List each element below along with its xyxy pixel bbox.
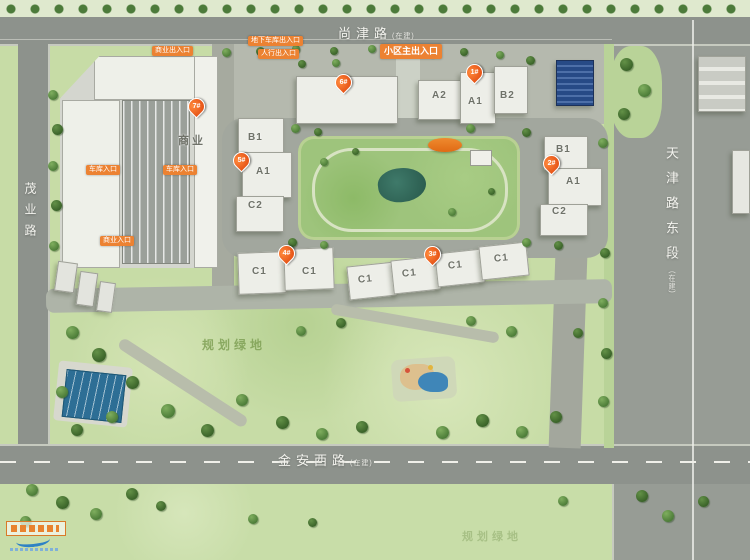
tree xyxy=(298,60,306,68)
offsite-building-e xyxy=(732,150,750,214)
entrance-tag-west-2: 车库入口 xyxy=(163,165,197,175)
road-label-top: 尚津路(在建) xyxy=(338,23,415,42)
tree xyxy=(296,326,306,336)
tree xyxy=(236,394,248,406)
tree xyxy=(330,47,338,55)
tree xyxy=(276,416,289,429)
tree xyxy=(573,328,583,338)
tree xyxy=(66,326,79,339)
south-green-strip xyxy=(0,482,614,560)
tree xyxy=(314,128,322,136)
tree xyxy=(436,426,449,439)
commercial-complex xyxy=(60,56,218,268)
tree xyxy=(522,238,531,247)
tree xyxy=(598,396,609,407)
road-label-left: 茂业路 xyxy=(22,182,39,245)
road-name-right: 天津路东段 xyxy=(664,146,679,271)
site-plan-map: 尚津路(在建) 茂业路 天津路东段(在建) 金安西路(在建) xyxy=(0,0,750,560)
existing-building-1 xyxy=(54,261,78,293)
tree xyxy=(601,348,612,359)
offsite-building-ne xyxy=(698,56,746,112)
commercial-east-wing xyxy=(194,56,218,268)
road-label-right: 天津路东段(在建) xyxy=(662,146,681,294)
lane-marking-top xyxy=(0,39,612,40)
road-name-left: 茂业路 xyxy=(23,182,37,245)
tree xyxy=(291,124,300,133)
tree xyxy=(332,59,340,67)
tree xyxy=(618,108,630,120)
tree xyxy=(598,138,608,148)
tree xyxy=(368,45,376,53)
tree xyxy=(56,496,69,509)
tree xyxy=(71,424,83,436)
entrance-tag-west-1: 车库入口 xyxy=(86,165,120,175)
tree xyxy=(554,241,563,250)
tree xyxy=(476,414,489,427)
tree xyxy=(51,200,62,211)
unit-label: C1 xyxy=(447,259,463,271)
tree xyxy=(522,128,531,137)
unit-label: B2 xyxy=(500,90,515,101)
commercial-label: 商业 xyxy=(178,132,206,148)
tree xyxy=(662,510,674,522)
tree xyxy=(49,241,59,251)
tree xyxy=(161,404,175,418)
tree xyxy=(598,298,608,308)
unit-label: C1 xyxy=(493,252,509,264)
tree xyxy=(558,496,568,506)
entrance-tag-garage: 地下车库出入口 xyxy=(248,36,303,46)
entrance-tag-pedestrian: 人行出入口 xyxy=(258,49,299,59)
corner-green xyxy=(610,46,662,138)
road-status-right: (在建) xyxy=(668,271,675,294)
tree xyxy=(52,124,63,135)
unit-label: A1 xyxy=(566,176,581,187)
tree xyxy=(620,58,633,71)
unit-label: C1 xyxy=(302,266,317,277)
road-status-top: (在建) xyxy=(392,33,415,40)
tree xyxy=(248,514,258,524)
tree xyxy=(506,326,517,337)
facility-building-blue xyxy=(556,60,594,106)
road-left xyxy=(18,44,50,482)
tree xyxy=(308,518,317,527)
unit-label: A2 xyxy=(432,90,447,101)
unit-label: C2 xyxy=(248,200,263,211)
lane-marking-right xyxy=(692,20,694,560)
green-space-label-south: 规划绿地 xyxy=(462,528,522,544)
tree xyxy=(320,158,328,166)
tree xyxy=(92,348,106,362)
tree xyxy=(516,426,528,438)
tree xyxy=(156,501,166,511)
tree xyxy=(466,124,475,133)
unit-label: C1 xyxy=(357,273,373,285)
tree xyxy=(48,90,58,100)
tree xyxy=(26,484,38,496)
tree xyxy=(488,188,495,195)
tree xyxy=(320,241,328,249)
tree xyxy=(460,48,468,56)
tree xyxy=(636,490,648,502)
tree xyxy=(698,496,709,507)
tree xyxy=(48,161,58,171)
lane-marking-bottom xyxy=(0,461,750,463)
tree xyxy=(316,428,328,440)
unit-label: A1 xyxy=(256,166,271,177)
tree xyxy=(222,48,231,57)
tree xyxy=(201,424,214,437)
tree xyxy=(126,488,138,500)
tree xyxy=(526,56,535,65)
unit-label: A1 xyxy=(468,96,483,107)
road-label-bottom: 金安西路(在建) xyxy=(278,450,373,469)
road-bottom xyxy=(0,444,750,484)
playground-equipment-red xyxy=(405,368,410,373)
green-space-label-main: 规划绿地 xyxy=(202,336,266,353)
playground-structure xyxy=(418,372,448,392)
developer-logo-text-marks xyxy=(10,548,60,551)
tree xyxy=(466,316,476,326)
tree xyxy=(638,84,651,97)
tree xyxy=(356,421,368,433)
playground-equipment-yellow xyxy=(428,365,433,370)
tree xyxy=(600,248,610,258)
building-2-block-a1 xyxy=(548,168,602,206)
unit-label: C1 xyxy=(252,266,267,277)
tree xyxy=(56,386,68,398)
tree xyxy=(448,208,456,216)
road-status-bottom: (在建) xyxy=(350,460,373,467)
street-tree-strip xyxy=(0,0,750,17)
feature-marker xyxy=(428,138,462,152)
road-name-top: 尚津路 xyxy=(338,26,392,41)
entrance-tag-south: 商业入口 xyxy=(100,236,134,246)
entrance-tag-main: 小区主出入口 xyxy=(380,44,442,59)
road-name-bottom: 金安西路 xyxy=(278,453,350,468)
tree xyxy=(90,508,102,520)
tree xyxy=(126,376,139,389)
entrance-tag-commercial: 商业出入口 xyxy=(152,46,193,56)
commercial-north-wing xyxy=(94,56,196,100)
unit-label: C2 xyxy=(552,206,567,217)
unit-label: C1 xyxy=(401,267,417,279)
unit-label: B1 xyxy=(248,132,263,143)
tree xyxy=(550,411,562,423)
courtyard-pavilion xyxy=(470,150,492,166)
tree xyxy=(106,411,118,423)
tree xyxy=(336,318,346,328)
stamp-text-marks xyxy=(11,525,59,532)
unit-label: B1 xyxy=(556,144,571,155)
tree xyxy=(496,51,504,59)
tree xyxy=(352,148,359,155)
